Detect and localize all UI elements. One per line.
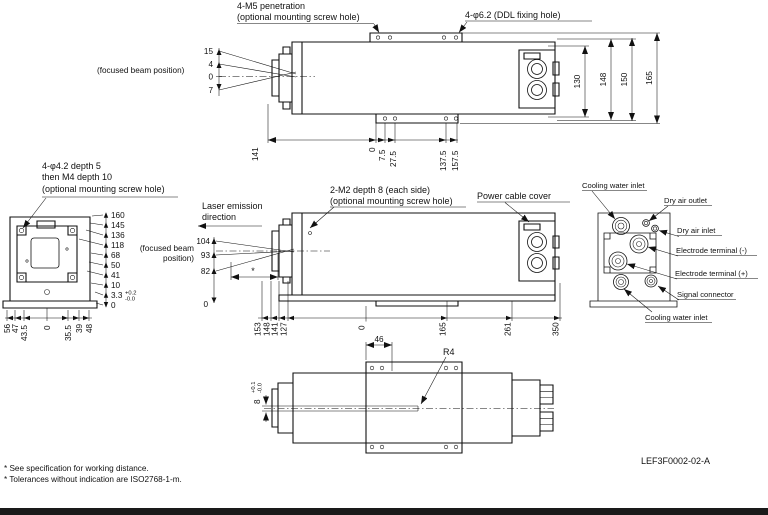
label-m5-line2: (optional mounting screw hole) <box>237 12 360 22</box>
footnote-working-distance: * See specification for working distance… <box>4 464 149 473</box>
top-view-holes <box>376 36 457 120</box>
sv-dim-127: 127 <box>280 322 289 336</box>
sv-dim-104: 104 <box>196 237 210 246</box>
drawing-canvas: 4-M5 penetration (optional mounting scre… <box>0 0 768 515</box>
top-view-outline <box>272 33 559 123</box>
label-m5-line1: 4-M5 penetration <box>237 1 305 11</box>
dim-27-5: 27.5 <box>389 151 398 167</box>
ddl-leader <box>459 22 467 33</box>
bv-dim-46: 46 <box>374 335 384 344</box>
focused-beam-label-top: (focused beam position) <box>97 66 185 75</box>
label-dry-air-outlet: Dry air outlet <box>664 196 708 205</box>
bv-tol-minus: -0.0 <box>258 383 264 393</box>
bottom-view: 46 R4 8 +0.1 -0.0 <box>251 335 554 453</box>
bv-tol-plus: +0.1 <box>251 382 257 393</box>
fv-dim-b0: 0 <box>43 325 52 330</box>
cooling-water-inlet-top-connector <box>613 218 630 235</box>
label-signal-connector: Signal connector <box>677 290 734 299</box>
beam-dim-7: 7 <box>208 86 213 95</box>
electrode-terminal-plus-connector <box>609 252 627 270</box>
beam-dim-0: 0 <box>208 73 213 82</box>
leader-dry-inlet <box>659 231 679 237</box>
fv-dim-145: 145 <box>111 221 125 230</box>
m5-leader <box>374 24 379 33</box>
sv-dim-141: 141 <box>271 322 280 336</box>
cable-gland-connectors-top <box>528 60 547 100</box>
rear-view-outline <box>590 213 677 307</box>
leader-electrode-minus <box>648 247 678 256</box>
dim-150: 150 <box>620 72 629 86</box>
fv-dim-47: 47 <box>11 323 20 333</box>
side-view-tick-arrows <box>212 238 561 320</box>
sv-dim-b0: 0 <box>358 325 367 330</box>
m4-leader <box>23 198 46 228</box>
label-dry-air-inlet: Dry air inlet <box>677 226 716 235</box>
dry-air-outlet-connector <box>643 220 650 227</box>
dim-157-5: 157.5 <box>451 150 460 171</box>
fv-dim-0: 0 <box>111 301 116 310</box>
cooling-water-inlet-bottom-connector <box>614 275 629 290</box>
leader-signal <box>658 286 679 300</box>
fv-dim-136: 136 <box>111 231 125 240</box>
bv-dim-8: 8 <box>253 399 262 404</box>
focused-beam-side-line2: position) <box>163 254 194 263</box>
dim-141: 141 <box>251 147 260 161</box>
footnote-tolerances: * Tolerances without indication are ISO2… <box>4 475 182 484</box>
bottom-view-outline <box>272 362 553 453</box>
power-cover-leader <box>505 203 529 223</box>
top-view-extension-lines <box>216 21 660 143</box>
label-m2-line1: 2-M2 depth 8 (each side) <box>330 185 430 195</box>
m2-leader <box>310 207 334 228</box>
laser-emission-line1: Laser emission <box>202 201 263 211</box>
signal-connector <box>645 275 657 287</box>
dim-137-5: 137.5 <box>439 150 448 171</box>
sv-dim-165: 165 <box>439 322 448 336</box>
bottom-view-holes <box>370 366 458 449</box>
side-view-outline <box>272 213 559 306</box>
footer: * See specification for working distance… <box>4 456 710 484</box>
rear-view: Cooling water inlet Dry air outlet Dry a… <box>582 181 758 323</box>
dry-air-inlet-connector <box>652 225 659 232</box>
laser-emission-line2: direction <box>202 212 236 222</box>
fv-dim-43-5: 43.5 <box>20 325 29 341</box>
fv-dim-41: 41 <box>111 271 121 280</box>
label-m2-line2: (optional mounting screw hole) <box>330 196 453 206</box>
dim-7-5: 7.5 <box>378 149 387 161</box>
sv-dim-93: 93 <box>201 251 211 260</box>
working-distance-asterisk: * <box>251 266 255 276</box>
leader-electrode-plus <box>627 264 677 279</box>
beam-dim-15: 15 <box>204 47 214 56</box>
sv-dim-82: 82 <box>201 267 211 276</box>
label-electrode-plus: Electrode terminal (+) <box>675 269 748 278</box>
tick-arrows <box>217 49 458 142</box>
sv-dim-350: 350 <box>552 322 561 336</box>
sv-dim-153: 153 <box>254 322 263 336</box>
fv-dim-118: 118 <box>111 241 124 250</box>
sv-dim-261: 261 <box>504 322 513 336</box>
bv-label-r4: R4 <box>443 347 455 357</box>
dim-0t: 0 <box>368 147 377 152</box>
fv-dim-3-3: 3.3 <box>111 291 123 300</box>
fv-dim-10: 10 <box>111 281 121 290</box>
focused-beam-side-line1: (focused beam <box>140 244 194 253</box>
beam-lines <box>219 51 296 90</box>
cable-gland-connectors-side <box>309 232 547 273</box>
fv-tol-minus: -0.0 <box>125 297 135 303</box>
leader-cooling-bottom <box>624 289 652 312</box>
label-cooling-water-inlet-top: Cooling water inlet <box>582 181 645 190</box>
top-view: 4-M5 penetration (optional mounting scre… <box>97 1 660 171</box>
label-m4-line2: then M4 depth 10 <box>42 172 112 182</box>
drawing-number: LEF3F0002-02-A <box>641 456 710 466</box>
fv-dim-68: 68 <box>111 251 121 260</box>
dim-165: 165 <box>645 71 654 85</box>
label-ddl: 4-φ6.2 (DDL fixing hole) <box>465 10 561 20</box>
front-view-outline <box>3 217 97 308</box>
bottom-edge-bar <box>0 508 768 515</box>
label-m4-line3: (optional mounting screw hole) <box>42 184 165 194</box>
label-power-cover: Power cable cover <box>477 191 551 201</box>
electrode-terminal-minus-connector <box>630 235 648 253</box>
label-electrode-minus: Electrode terminal (-) <box>676 246 747 255</box>
fv-dim-50: 50 <box>111 261 121 270</box>
side-view-extension-lines <box>214 202 570 322</box>
fv-dim-160: 160 <box>111 211 125 220</box>
fv-dim-35-5: 35.5 <box>64 325 73 341</box>
beam-dim-4: 4 <box>208 60 213 69</box>
r4-leader <box>421 357 446 404</box>
fv-dim-48: 48 <box>85 323 94 333</box>
label-m4-line1: 4-φ4.2 depth 5 <box>42 161 101 171</box>
side-view: Laser emission direction 2-M2 depth 8 (e… <box>140 185 570 336</box>
dim-148: 148 <box>599 72 608 86</box>
dim-130: 130 <box>573 74 582 88</box>
fv-dim-39: 39 <box>75 323 84 333</box>
leader-dry-outlet <box>649 206 668 221</box>
technical-drawing-page: 4-M5 penetration (optional mounting scre… <box>0 0 768 515</box>
laser-aperture-window <box>31 238 59 268</box>
label-cooling-water-inlet-bottom: Cooling water inlet <box>645 313 708 322</box>
leader-cooling-top <box>592 191 615 219</box>
sv-dim-zero: 0 <box>203 300 208 309</box>
bottom-view-details <box>262 342 553 425</box>
